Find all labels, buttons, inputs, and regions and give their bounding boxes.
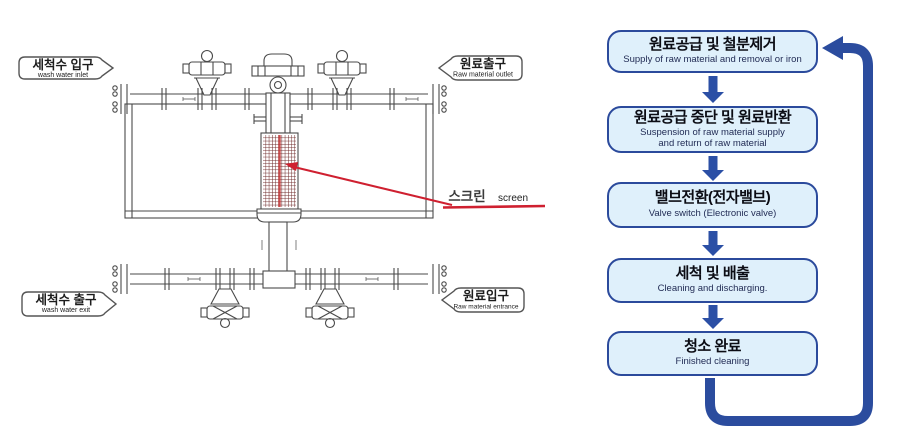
flow-step-5-title: 청소 완료 bbox=[684, 339, 741, 356]
flow-step-3-title: 밸브전환(전자밸브) bbox=[655, 190, 770, 207]
screenshot-root: 세척수 입구 wash water inlet 원료출구 Raw materia… bbox=[0, 0, 900, 442]
flow-step-5-subtitle: Finished cleaning bbox=[676, 357, 750, 368]
flow-step-3: 밸브전환(전자밸브) Valve switch (Electronic valv… bbox=[607, 182, 818, 228]
flow-step-2-title: 원료공급 중단 및 원료반환 bbox=[634, 110, 791, 127]
flow-step-2-subtitle: Suspension of raw material supply and re… bbox=[640, 128, 785, 149]
flow-step-1-title: 원료공급 및 철분제거 bbox=[649, 37, 776, 54]
flow-step-4: 세척 및 배출 Cleaning and discharging. bbox=[607, 258, 818, 303]
flow-step-5: 청소 완료 Finished cleaning bbox=[607, 331, 818, 376]
arrow-down-1 bbox=[702, 76, 724, 103]
flow-step-3-subtitle: Valve switch (Electronic valve) bbox=[649, 209, 777, 220]
flow-step-1-subtitle: Supply of raw material and removal or ir… bbox=[623, 55, 801, 66]
flow-step-4-subtitle: Cleaning and discharging. bbox=[658, 284, 768, 295]
arrow-down-3 bbox=[702, 231, 724, 256]
flow-step-2: 원료공급 중단 및 원료반환 Suspension of raw materia… bbox=[607, 106, 818, 153]
arrow-down-2 bbox=[702, 156, 724, 181]
flow-step-4-title: 세척 및 배출 bbox=[676, 266, 750, 283]
flow-step-1: 원료공급 및 철분제거 Supply of raw material and r… bbox=[607, 30, 818, 73]
arrow-down-4 bbox=[702, 305, 724, 329]
